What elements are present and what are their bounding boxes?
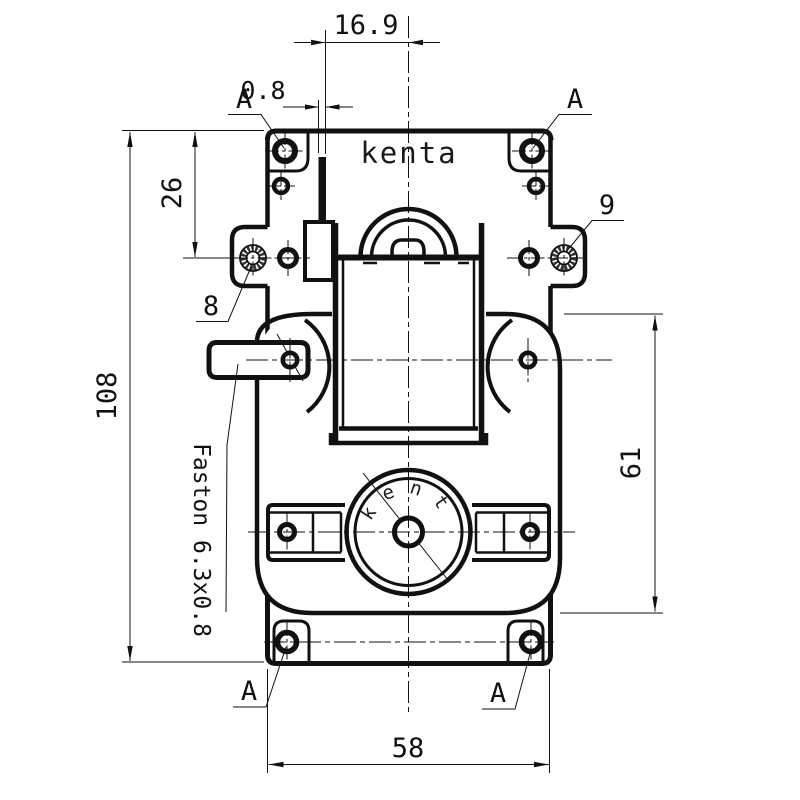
dim-overall-height: 108 bbox=[92, 132, 133, 661]
dim-terminal-offset: 16.9 bbox=[294, 10, 440, 45]
leader-faston bbox=[226, 364, 238, 612]
dim-61-arrow-top bbox=[652, 316, 657, 331]
section-label-top-left: A bbox=[236, 84, 252, 115]
technical-drawing-page: kenta bbox=[0, 0, 800, 800]
terminal-block bbox=[305, 222, 333, 280]
terminal-blade bbox=[319, 157, 327, 222]
dim-58-label: 58 bbox=[392, 733, 425, 764]
dim-upper-hole-offset: 26 bbox=[157, 132, 198, 257]
faston-spec-label: Faston 6.3x0.8 bbox=[188, 443, 214, 637]
gear-motor-drawing: kenta bbox=[0, 0, 800, 800]
dim-08-arrow-right bbox=[326, 104, 340, 109]
section-label-bottom-right: A bbox=[490, 678, 506, 709]
dim-terminal-thickness: 0.8 bbox=[240, 76, 353, 110]
dim-58-arrow-right bbox=[534, 762, 549, 767]
dim-108-arrow-bottom bbox=[127, 646, 132, 661]
dim-169-arrow-left bbox=[311, 40, 326, 45]
dim-26-arrow-bottom bbox=[192, 242, 197, 257]
dim-26-label: 26 bbox=[157, 177, 188, 210]
section-label-top-right: A bbox=[567, 84, 583, 115]
crosshair-right-tab bbox=[507, 238, 583, 278]
crosshair-left-tab bbox=[234, 238, 310, 278]
dim-mounting-width: 58 bbox=[269, 733, 550, 767]
dim-169-label: 16.9 bbox=[333, 10, 398, 41]
dim-gearbox-height: 61 bbox=[616, 316, 658, 612]
ref-label-8: 8 bbox=[203, 291, 219, 322]
dim-61-arrow-bottom bbox=[652, 597, 657, 612]
dim-169-arrow-right bbox=[409, 40, 424, 45]
dim-108-arrow-top bbox=[127, 132, 132, 147]
dim-58-arrow-left bbox=[269, 762, 284, 767]
dim-26-arrow-top bbox=[192, 132, 197, 147]
brand-label: kenta bbox=[360, 136, 457, 170]
dim-61-label: 61 bbox=[616, 447, 647, 480]
section-label-bottom-left: A bbox=[241, 676, 257, 707]
dim-08-arrow-left bbox=[305, 104, 319, 109]
dim-108-label: 108 bbox=[92, 372, 123, 421]
ref-label-9: 9 bbox=[599, 190, 615, 221]
